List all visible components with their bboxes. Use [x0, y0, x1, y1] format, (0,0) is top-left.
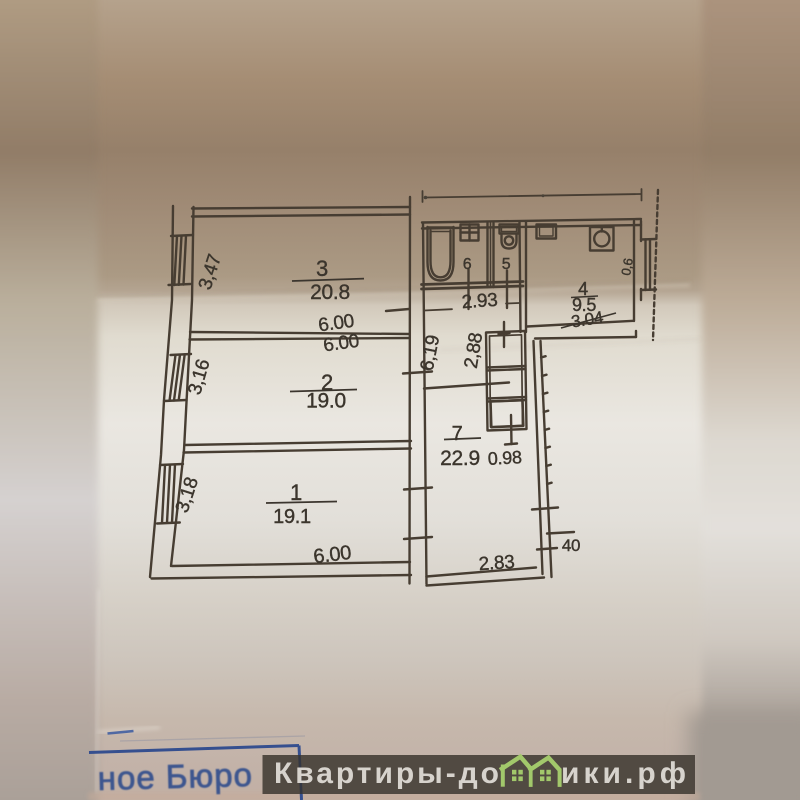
svg-text:6: 6	[463, 256, 472, 273]
svg-text:22.9: 22.9	[440, 447, 480, 470]
svg-text:19.0: 19.0	[306, 390, 346, 413]
svg-text:6.00: 6.00	[312, 542, 352, 568]
svg-text:20.8: 20.8	[310, 281, 350, 304]
svg-text:0.98: 0.98	[487, 447, 522, 469]
svg-text:7: 7	[452, 423, 463, 445]
svg-text:2.93: 2.93	[461, 290, 498, 313]
svg-text:19.1: 19.1	[273, 506, 311, 528]
svg-text:1: 1	[290, 480, 302, 505]
svg-text:ное Бюро: ное Бюро	[97, 756, 253, 797]
svg-text:2.83: 2.83	[478, 552, 515, 575]
svg-text:5: 5	[502, 256, 511, 273]
svg-text:40: 40	[562, 536, 580, 555]
svg-text:0,6: 0,6	[618, 257, 636, 277]
svg-text:Квартиры-до: Квартиры-до	[274, 757, 499, 790]
svg-text:3: 3	[316, 256, 328, 281]
